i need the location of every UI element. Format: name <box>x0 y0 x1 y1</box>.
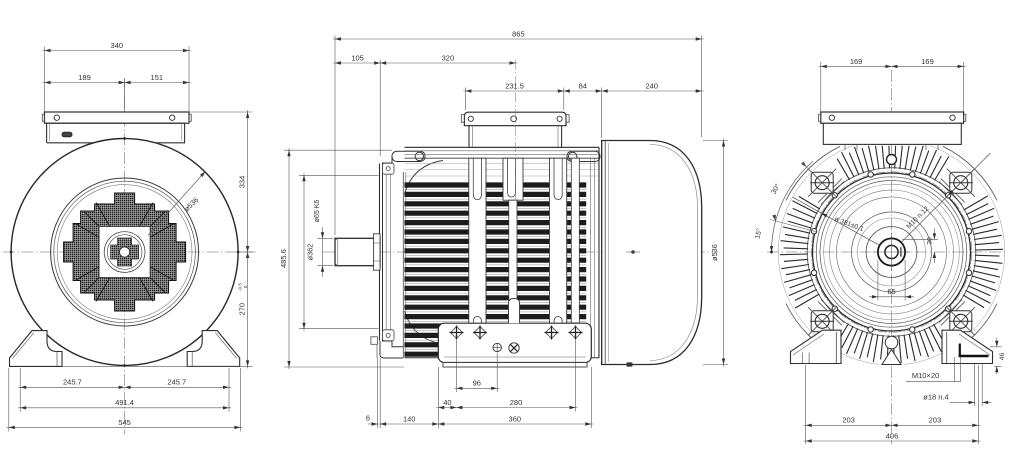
svg-text:360: 360 <box>509 414 522 423</box>
svg-text:545: 545 <box>118 418 131 427</box>
svg-text:334: 334 <box>238 176 247 189</box>
svg-text:485.6: 485.6 <box>279 249 288 268</box>
svg-text:ø18 n.4: ø18 n.4 <box>923 392 948 401</box>
svg-text:245.7: 245.7 <box>167 378 186 387</box>
svg-text:245.7: 245.7 <box>63 378 82 387</box>
svg-text:65: 65 <box>887 287 895 296</box>
svg-text:105: 105 <box>351 53 364 62</box>
svg-text:169: 169 <box>850 57 863 66</box>
svg-text:84: 84 <box>579 81 587 90</box>
svg-text:-0.5: -0.5 <box>238 283 243 291</box>
svg-text:406: 406 <box>886 431 899 440</box>
svg-text:491.4: 491.4 <box>115 398 134 407</box>
svg-text:189: 189 <box>78 73 91 82</box>
svg-text:140: 140 <box>403 414 416 423</box>
svg-text:169: 169 <box>921 57 934 66</box>
svg-text:ø536: ø536 <box>710 244 719 261</box>
svg-text:ø362: ø362 <box>306 244 315 261</box>
svg-text:240: 240 <box>645 81 658 90</box>
svg-text:30: 30 <box>926 237 933 245</box>
svg-text:320: 320 <box>442 53 455 62</box>
svg-text:46: 46 <box>999 353 1006 361</box>
svg-text:M10×20: M10×20 <box>912 371 939 380</box>
svg-text:340: 340 <box>111 41 124 50</box>
svg-text:40: 40 <box>443 398 451 407</box>
svg-text:280: 280 <box>510 398 523 407</box>
svg-text:ø65 K6: ø65 K6 <box>314 200 321 223</box>
svg-text:270: 270 <box>238 303 247 316</box>
svg-text:865: 865 <box>512 29 525 38</box>
svg-text:151: 151 <box>151 73 164 82</box>
svg-text:203: 203 <box>929 416 942 425</box>
svg-text:96: 96 <box>473 379 481 388</box>
svg-text:231.5: 231.5 <box>505 81 524 90</box>
svg-text:6: 6 <box>366 414 370 423</box>
svg-text:0: 0 <box>243 285 248 288</box>
svg-text:203: 203 <box>842 416 855 425</box>
